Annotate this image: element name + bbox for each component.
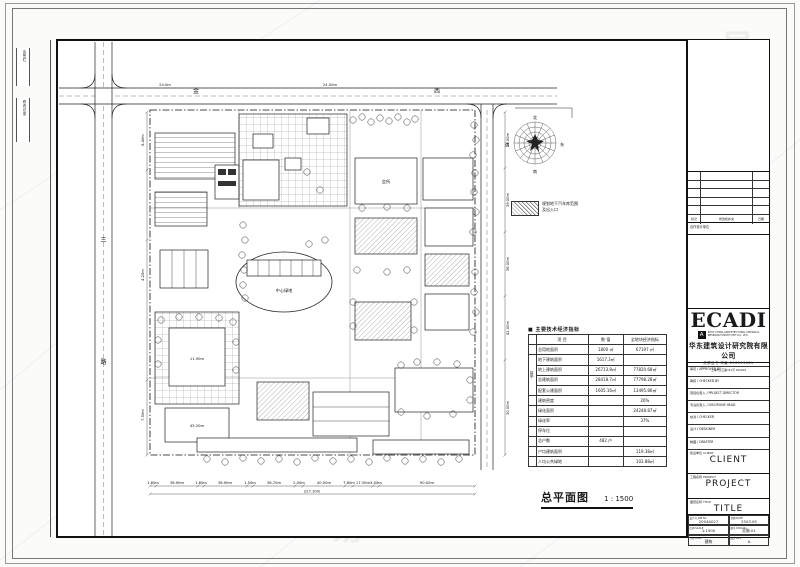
client-section: 建设单位 CLIENT CLIENT: [688, 450, 769, 474]
road-name-char: 路: [100, 358, 106, 366]
dim-label: 39.00m: [506, 193, 510, 208]
stats-value: [588, 416, 623, 426]
dim-label: 1.60m: [147, 481, 159, 485]
stats-item: 户均建筑面积: [536, 447, 588, 457]
dim-label: 36.00m: [506, 257, 510, 272]
stats-value: 482 户: [588, 436, 623, 446]
stats-value: 24248.87㎡: [623, 406, 666, 416]
building-height: 11.90m: [190, 357, 205, 361]
left-dimensions: 8.40m 4.20m 7.50m: [141, 111, 149, 457]
dim-label: 42.00m: [506, 321, 510, 336]
stats-value: 77798.28㎡: [623, 375, 666, 385]
dim-label: 36.70m: [267, 481, 282, 485]
stats-item: 总户数: [536, 436, 588, 446]
dim-label: 2.00m: [293, 481, 305, 485]
road-width-dim: 24.0m: [159, 83, 171, 87]
stats-header: 数 值: [588, 335, 623, 345]
stats-item: 配套公建面积: [536, 385, 588, 395]
stats-value: [623, 355, 666, 365]
revision-label: 版次 REV.: [731, 536, 742, 540]
project-value: PROJECT: [688, 479, 769, 489]
road-name-char: 西: [434, 88, 440, 95]
stats-value: [623, 436, 666, 446]
stats-header: 全地块经济指标: [623, 335, 666, 345]
dim-label: 1.50m: [244, 481, 256, 485]
coop-designer-row: 合作设计单位: [688, 223, 769, 235]
margin-note: 修改记录: [16, 98, 30, 142]
stats-value: [623, 426, 666, 436]
stats-item: 建筑密度: [536, 396, 588, 406]
stats-value: [588, 406, 623, 416]
ecadi-logo-mark: A: [698, 331, 706, 339]
stats-value: 26%: [623, 396, 666, 406]
stats-item: 地下建筑面积: [536, 355, 588, 365]
dim-label: 4.20m: [141, 269, 145, 281]
margin-note: 会签栏: [16, 48, 30, 86]
stats-item: 总用地面积: [536, 345, 588, 355]
dim-label: 36.90m: [218, 481, 233, 485]
field-row: 制图 / DRAFTER: [688, 438, 769, 450]
stats-title: ■ 主要技术经济指标: [528, 326, 668, 333]
field-row: 审定 / APPROVED BY: [688, 365, 769, 377]
stats-value: 67197 ㎡: [623, 345, 666, 355]
dim-label: 40.00m: [317, 481, 332, 485]
field-row: 专业负责人 / DISCIPLINE HEAD: [688, 401, 769, 413]
stats-value: 26713.8㎡: [588, 365, 623, 375]
wind-rose: 北 南 东 西: [505, 114, 564, 174]
stats-value: 1605.16㎡: [588, 385, 623, 395]
stats-value: 102.88㎡: [623, 457, 666, 467]
date-label: 日期 DATE: [731, 516, 743, 520]
scale-label: 比例 SCALE: [690, 526, 704, 530]
titleblock-grid: 设计号 JOB No.2004A027 日期 DATE2503.05 比例 SC…: [688, 515, 769, 537]
stats-side-label: 其中: [529, 355, 537, 396]
wind-rose-south: 南: [533, 168, 537, 174]
legend: 规划地下汽车库范围 及出入口: [511, 201, 578, 216]
discipline-label: 专业 DISC.: [690, 536, 703, 540]
dim-label: 1.60m: [195, 481, 207, 485]
title-section: 图纸名称 TITLE TITLE: [688, 499, 769, 515]
dim-label: 30.00m: [506, 401, 510, 416]
stats-value: 119.38㎡: [623, 447, 666, 457]
ecadi-en-line2: RESEARCH INSTITUTE CO., LTD.: [708, 335, 760, 338]
dim-label: 17.30m: [356, 481, 371, 485]
stats-value: 1800 ㎡: [588, 345, 623, 355]
stats-value: 13495.86㎡: [623, 385, 666, 395]
stats-value: 28418.7㎡: [588, 375, 623, 385]
field-row: 项目负责人 / PROJECT DIRECTOR: [688, 389, 769, 401]
legend-line2: 及出入口: [542, 207, 578, 213]
stats-value: 37%: [623, 416, 666, 426]
cad-sheet: { "watermark": { "glyph": "易" }, "sheet"…: [0, 0, 800, 567]
right-dimensions: 24.00m 39.00m 36.00m 42.00m 30.00m: [504, 111, 511, 457]
central-green: 中心绿地: [236, 252, 332, 312]
wind-rose-east: 东: [560, 141, 564, 147]
road-name-char: 金: [193, 87, 199, 95]
ecadi-wordmark: ECADI: [688, 310, 769, 330]
road-width-dim: 24.00m: [323, 83, 338, 87]
stats-item: 地上建筑面积: [536, 365, 588, 375]
stats-header: 项 目: [536, 335, 588, 345]
building-label: 会所: [382, 178, 390, 185]
stats-item: 绿化率: [536, 416, 588, 426]
building-height: 45.20m: [190, 424, 205, 428]
road-name-char: 三: [100, 237, 106, 244]
dim-label: 7.80m: [343, 481, 355, 485]
drawing-title: 总平面图 1 : 1500: [541, 486, 633, 509]
stats-item: 绿化面积: [536, 406, 588, 416]
dim-label: 36.90m: [170, 481, 185, 485]
dim-total: 227.10m: [304, 490, 321, 494]
stats-value: 1617.3㎡: [588, 355, 623, 365]
field-row: 审核 / CHECKED BY: [688, 377, 769, 389]
job-no-label: 设计号 JOB No.: [690, 516, 708, 520]
project-section: 工程名称 PROJECT PROJECT: [688, 474, 769, 499]
stats-item: 人均公共绿地: [536, 457, 588, 467]
legend-line1: 规划地下汽车库范围: [542, 201, 578, 207]
green-label: 中心绿地: [276, 287, 294, 294]
dwg-no-label: 图号 DWG No.: [731, 526, 748, 530]
field-row: 校对 / CHECKER: [688, 413, 769, 425]
stats-value: [588, 396, 623, 406]
field-row: 设计 / DESIGNER: [688, 425, 769, 437]
stats-value: [588, 447, 623, 457]
dim-label: 24.00m: [506, 133, 510, 148]
stats-item: 停车位: [536, 426, 588, 436]
client-value: CLIENT: [688, 455, 769, 465]
stats-table: ■ 主要技术经济指标 项 目 数 值 全地块经济指标 总用地面积1800 ㎡67…: [528, 326, 668, 467]
bottom-dimensions: 1.60m 36.90m 1.60m 36.90m 1.50m 36.70m 2…: [147, 481, 476, 496]
drawing-title-scale: 1 : 1500: [604, 495, 633, 503]
stats-value: [588, 457, 623, 467]
revision-table: 标记 修改和补充 日期: [688, 171, 769, 223]
stats-value: [588, 426, 623, 436]
dim-label: 8.40m: [141, 134, 145, 146]
wind-rose-north: 北: [533, 114, 538, 121]
binding-line: [50, 40, 51, 537]
signature-fields: 审定 / APPROVED BY 审核 / CHECKED BY 项目负责人 /…: [688, 365, 769, 450]
legend-hatch-swatch: [511, 201, 539, 216]
sheet-title-value: TITLE: [688, 504, 769, 514]
stats-value: 77820.68㎡: [623, 365, 666, 375]
drawing-title-name: 总平面图: [541, 491, 589, 504]
ecadi-block: ECADI A EAST CHINA ARCHITECTURAL DESIGN …: [688, 308, 769, 363]
dim-label: 7.50m: [141, 409, 145, 421]
stats-item: 总建筑面积: [536, 375, 588, 385]
dim-label: 5.00m: [370, 481, 382, 485]
dim-label: 90.00m: [420, 481, 435, 485]
title-block: 标记 修改和补充 日期 合作设计单位 ECADI A EAST CHINA AR…: [686, 40, 769, 537]
ecadi-cn-name: 华东建筑设计研究院有限公司: [688, 340, 769, 360]
